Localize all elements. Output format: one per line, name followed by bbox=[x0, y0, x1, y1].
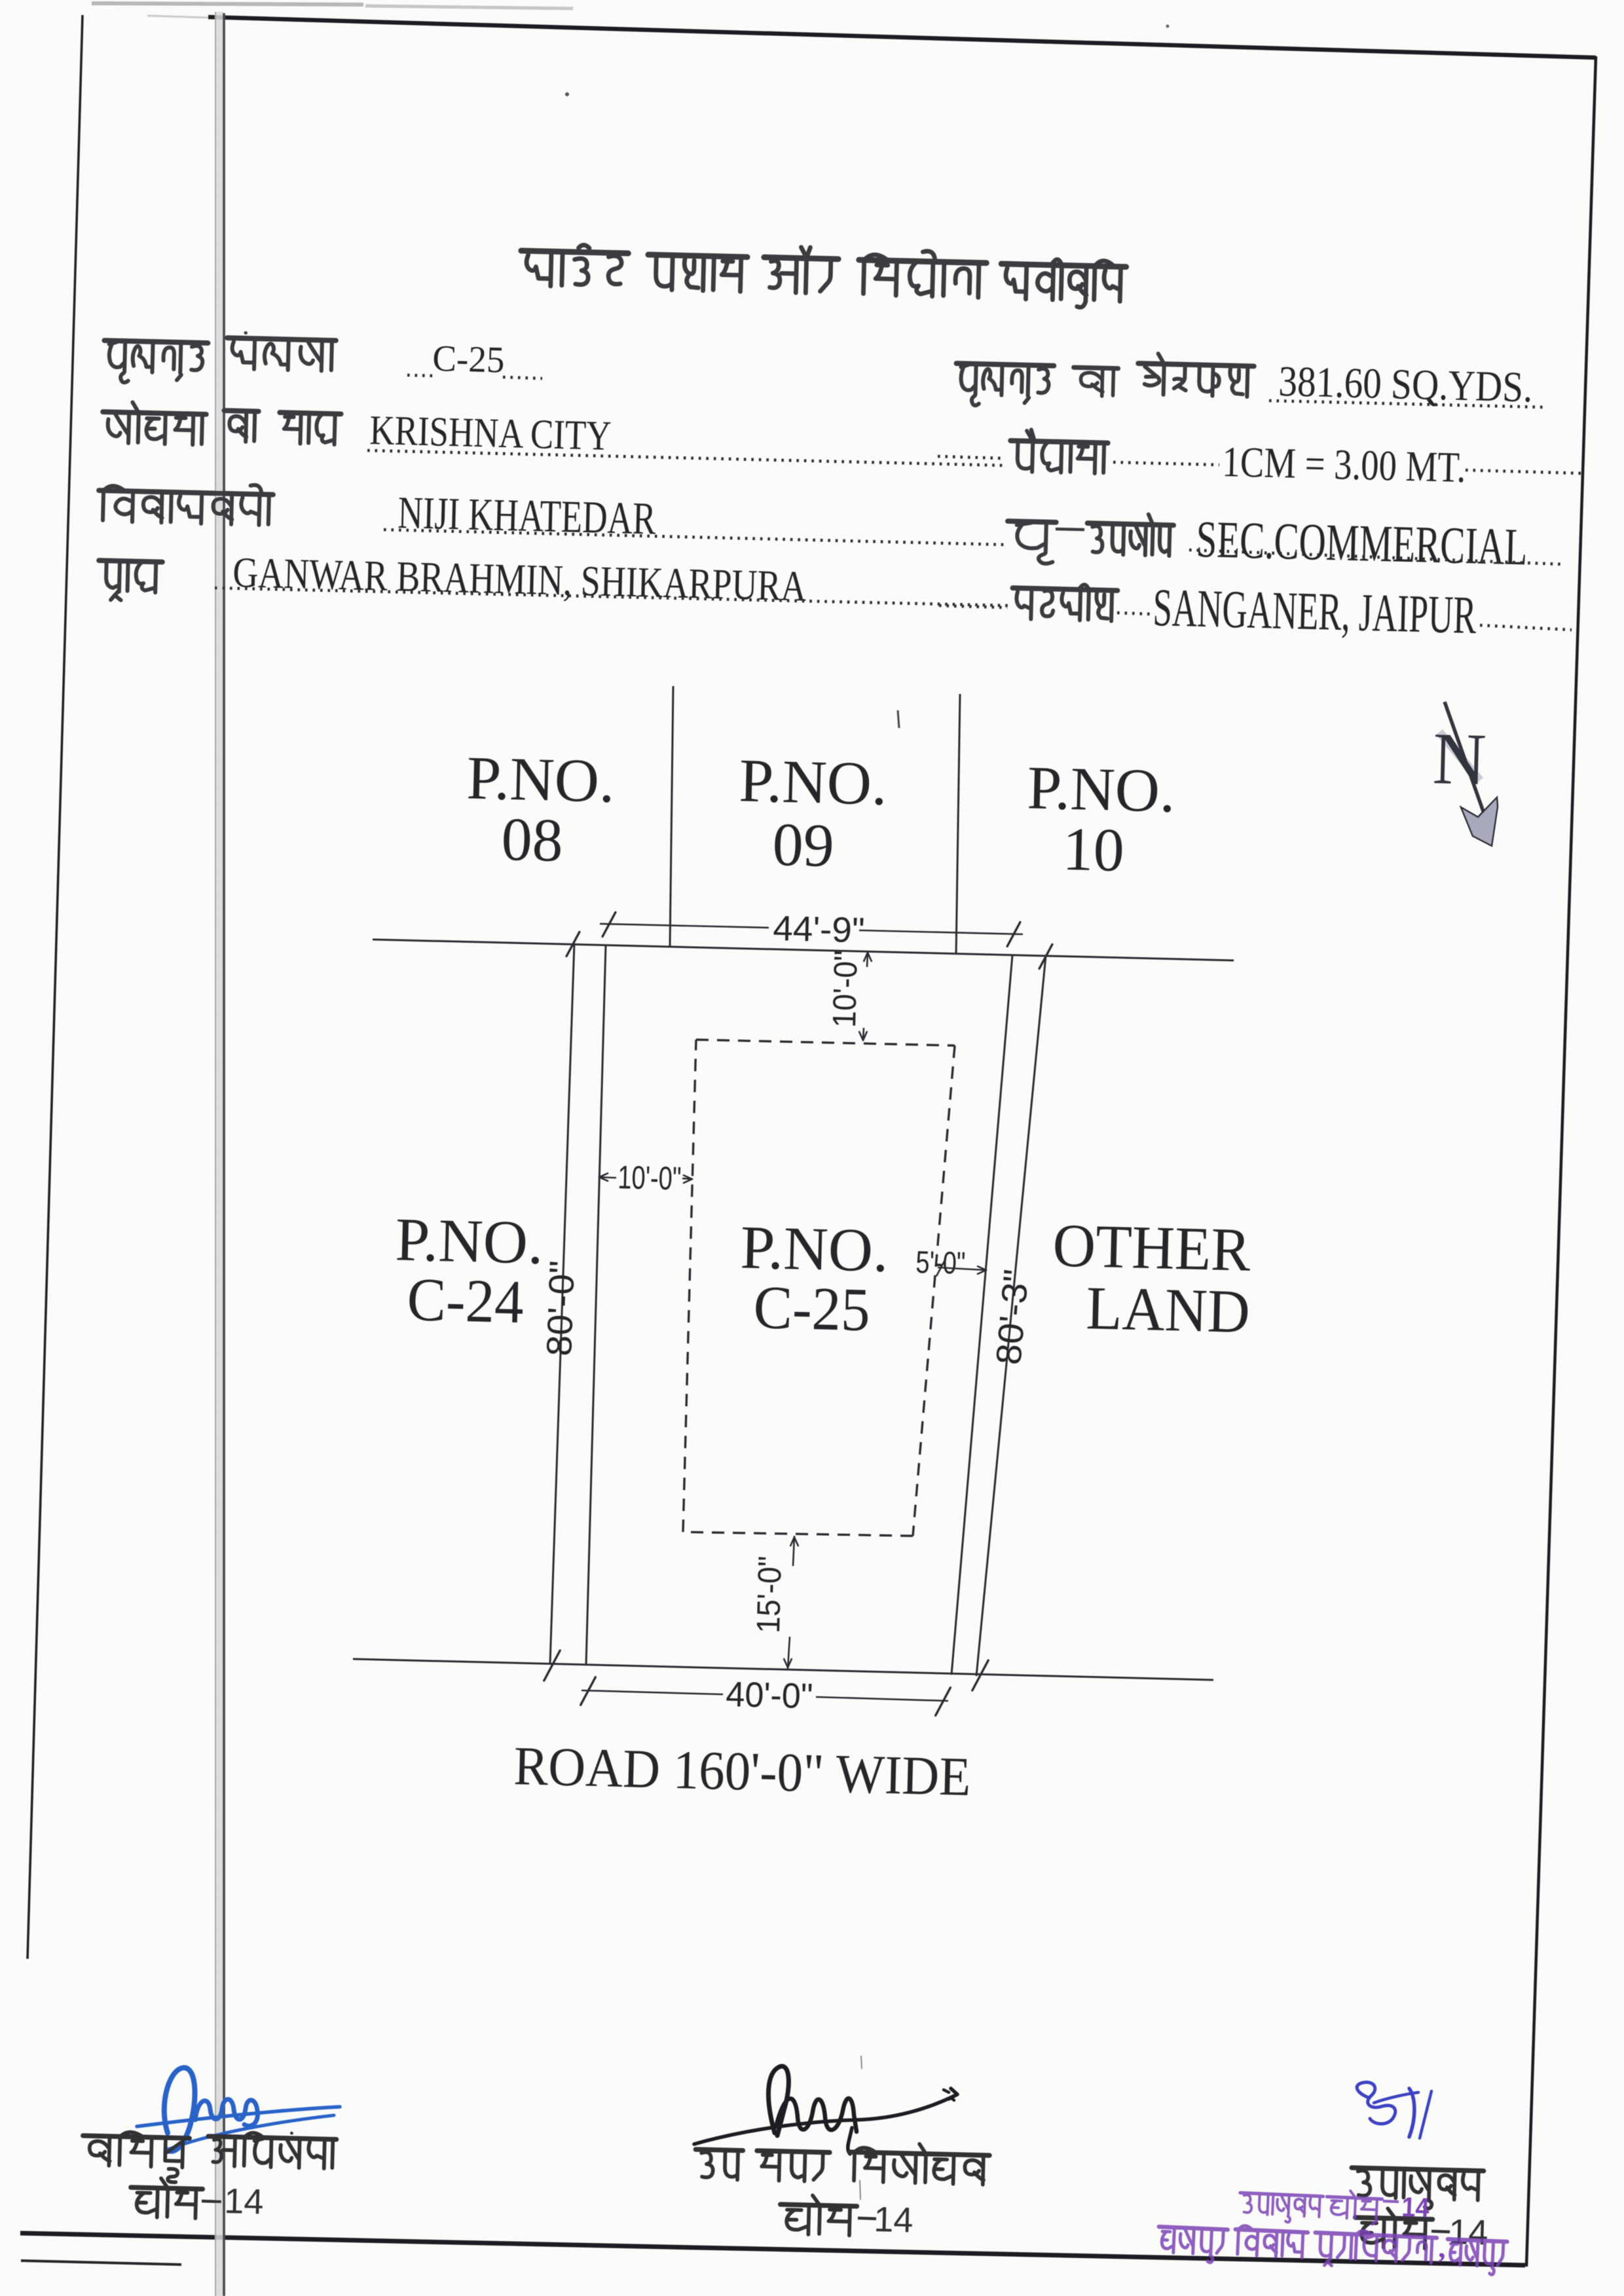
svg-text:14: 14 bbox=[874, 2200, 913, 2240]
svg-text:SANGANER, JAIPUR: SANGANER, JAIPUR bbox=[1153, 577, 1477, 645]
svg-text:C-25: C-25 bbox=[753, 1273, 871, 1344]
svg-text:15'-0": 15'-0" bbox=[750, 1556, 788, 1633]
svg-text:14: 14 bbox=[1401, 2191, 1431, 2223]
svg-text:80'-0": 80'-0" bbox=[540, 1260, 582, 1357]
svg-text:ROAD 160'-0" WIDE: ROAD 160'-0" WIDE bbox=[513, 1736, 972, 1808]
svg-text:C-25: C-25 bbox=[432, 338, 506, 381]
svg-text:08: 08 bbox=[501, 805, 564, 875]
svg-text:10'-0": 10'-0" bbox=[826, 950, 864, 1028]
svg-text:09: 09 bbox=[772, 811, 836, 880]
svg-text:LAND: LAND bbox=[1086, 1274, 1251, 1346]
svg-text:P.NO.: P.NO. bbox=[466, 744, 616, 815]
svg-text:SEC.COMMERCIAL: SEC.COMMERCIAL bbox=[1196, 511, 1528, 576]
svg-text:10'-0": 10'-0" bbox=[618, 1159, 682, 1197]
svg-text:14: 14 bbox=[224, 2181, 264, 2221]
svg-text:5'-0": 5'-0" bbox=[915, 1245, 966, 1281]
svg-text:OTHER: OTHER bbox=[1052, 1211, 1252, 1284]
svg-text:,: , bbox=[1438, 2231, 1447, 2264]
svg-text:80'-3": 80'-3" bbox=[989, 1267, 1036, 1366]
svg-text:P.NO.: P.NO. bbox=[739, 746, 888, 818]
svg-text:N: N bbox=[1431, 718, 1487, 801]
svg-text:1CM = 3.00 MT.: 1CM = 3.00 MT. bbox=[1222, 438, 1467, 492]
svg-text:40'-0": 40'-0" bbox=[726, 1675, 813, 1716]
svg-text:P.NO.: P.NO. bbox=[1027, 754, 1176, 825]
svg-text:10: 10 bbox=[1062, 815, 1126, 884]
svg-text:C-24: C-24 bbox=[407, 1266, 525, 1336]
svg-text:44'-9": 44'-9" bbox=[773, 909, 865, 950]
